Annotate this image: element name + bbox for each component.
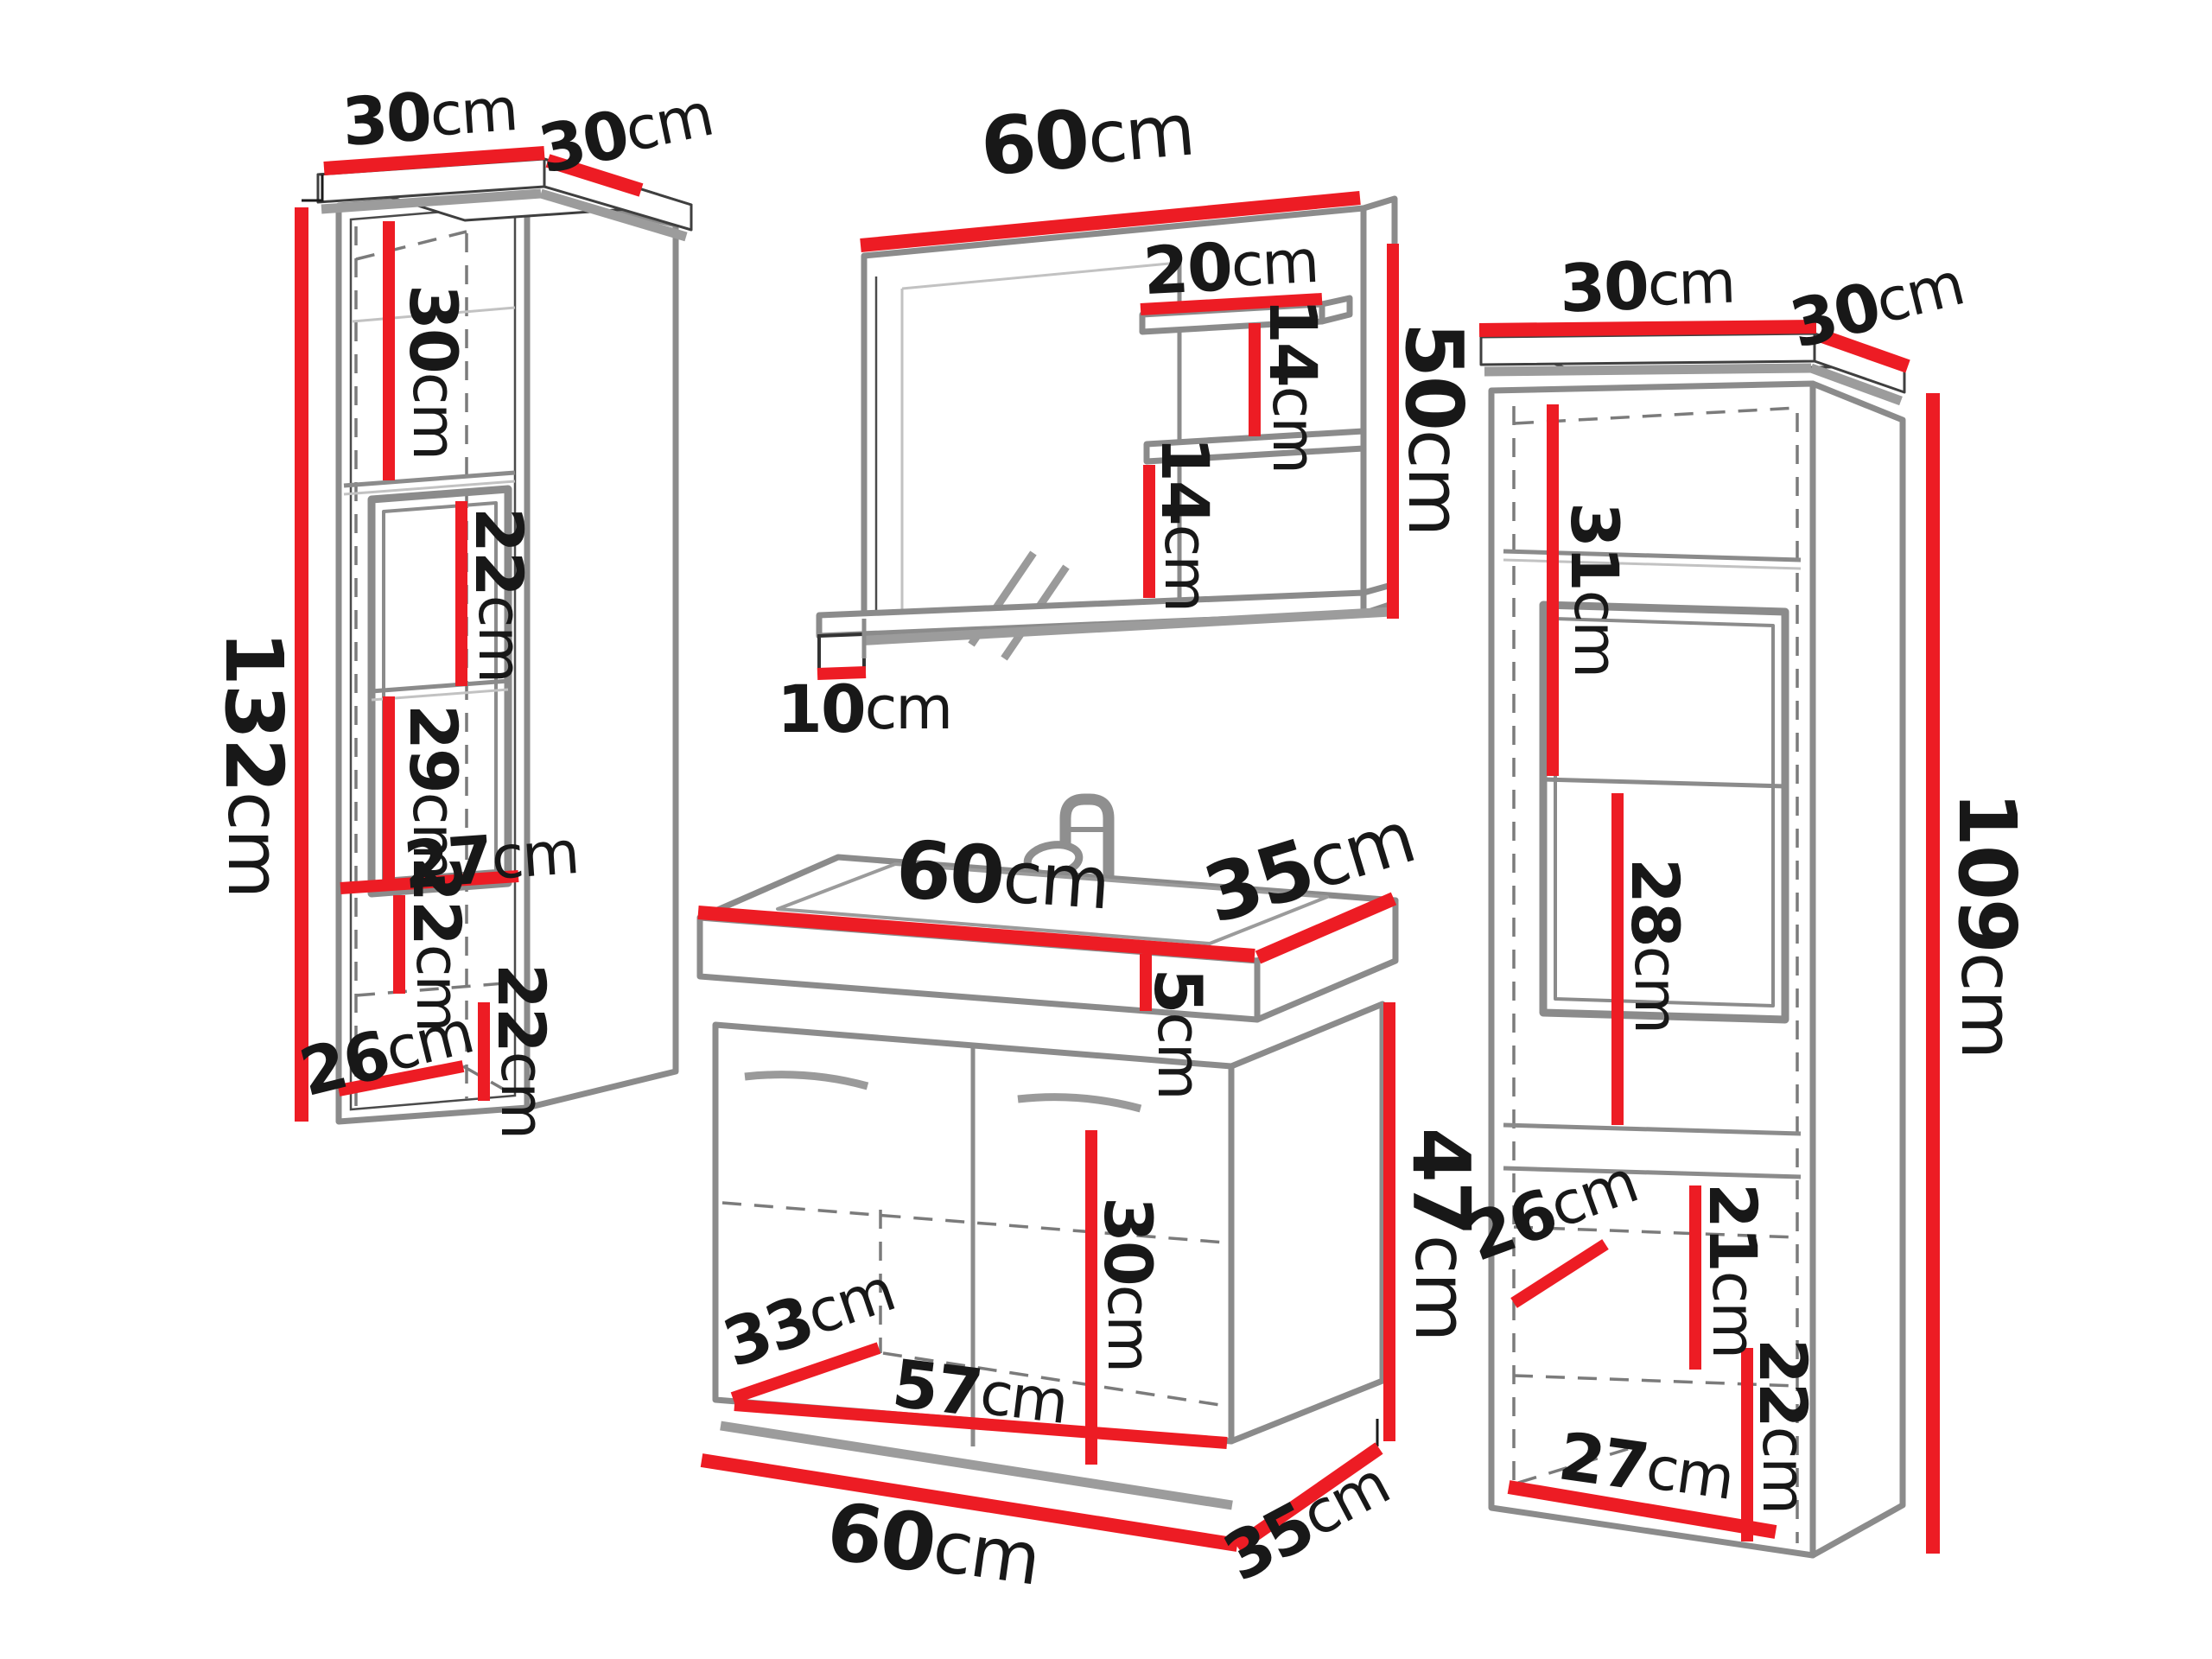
dim-mirror-gap1-label: 14cm [1255, 298, 1332, 473]
dim-mirror-height-label: 50cm [1389, 322, 1481, 535]
dim-right-sec4-label: 22cm [1745, 1338, 1822, 1513]
dim-right-top-width-label: 30cm [1559, 244, 1736, 327]
dim-left-sec2-label: 22cm [461, 507, 538, 682]
dim-mirror-shelf-width-label: 20cm [1141, 223, 1319, 308]
dim-right-sec3-label: 21cm [1695, 1183, 1772, 1357]
dim-sink-basin-height-label: 5cm [1141, 968, 1217, 1098]
dim-right-height-label: 109cm [1942, 791, 2034, 1058]
furniture-dimension-diagram: 30cm 30cm 132cm 30cm 22cm 29cm 27cm 22cm… [0, 0, 2212, 1659]
right-crown-front-face [1481, 334, 1815, 365]
dim-left-sec1-label: 30cm [396, 284, 473, 459]
sink-vanity-cabinet: 60cm 35cm 5cm 47cm 30cm 33cm 57cm 60cm 3… [698, 791, 1488, 1605]
dim-mirror-gap2-label: 14cm [1147, 436, 1224, 611]
dim-right-top-width-line [1479, 327, 1816, 330]
sink-body-side-face [1231, 1004, 1382, 1441]
diagram-canvas: 30cm 30cm 132cm 30cm 22cm 29cm 27cm 22cm… [0, 0, 2212, 1659]
dim-right-sec1-label: 31cm [1557, 502, 1634, 677]
dim-left-sec5-label: 22cm [484, 963, 561, 1138]
dim-left-height-label: 132cm [208, 631, 301, 897]
dim-mirror-shelf-depth-label: 10cm [777, 671, 951, 747]
right-crown-shadow-front [1484, 368, 1811, 372]
dim-sink-inner-height-label: 30cm [1090, 1197, 1167, 1371]
dim-right-sec2-label: 28cm [1618, 858, 1694, 1033]
right-cabinet-side-face [1813, 384, 1903, 1555]
dim-sink-top-width-label: 60cm [893, 823, 1111, 930]
